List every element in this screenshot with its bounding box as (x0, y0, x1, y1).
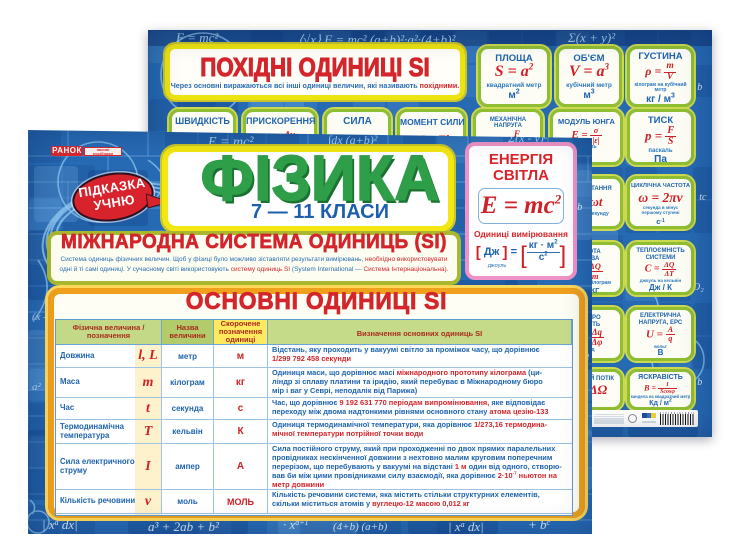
svg-text:a³ + 2ab + b²: a³ + 2ab + b² (148, 519, 220, 534)
svg-text:Σ(x + y)²: Σ(x + y)² (567, 30, 616, 45)
svg-text:(4+b) (a+b): (4+b) (a+b) (333, 521, 388, 533)
svg-text:F = mc²: F = mc² (175, 30, 219, 45)
svg-text:| xa dx|: | xa dx| (448, 519, 484, 534)
svg-text:O₂: O₂ (693, 282, 704, 293)
svg-text:a²: a² (32, 381, 42, 393)
svg-text:| xa dx|: | xa dx| (42, 517, 78, 532)
